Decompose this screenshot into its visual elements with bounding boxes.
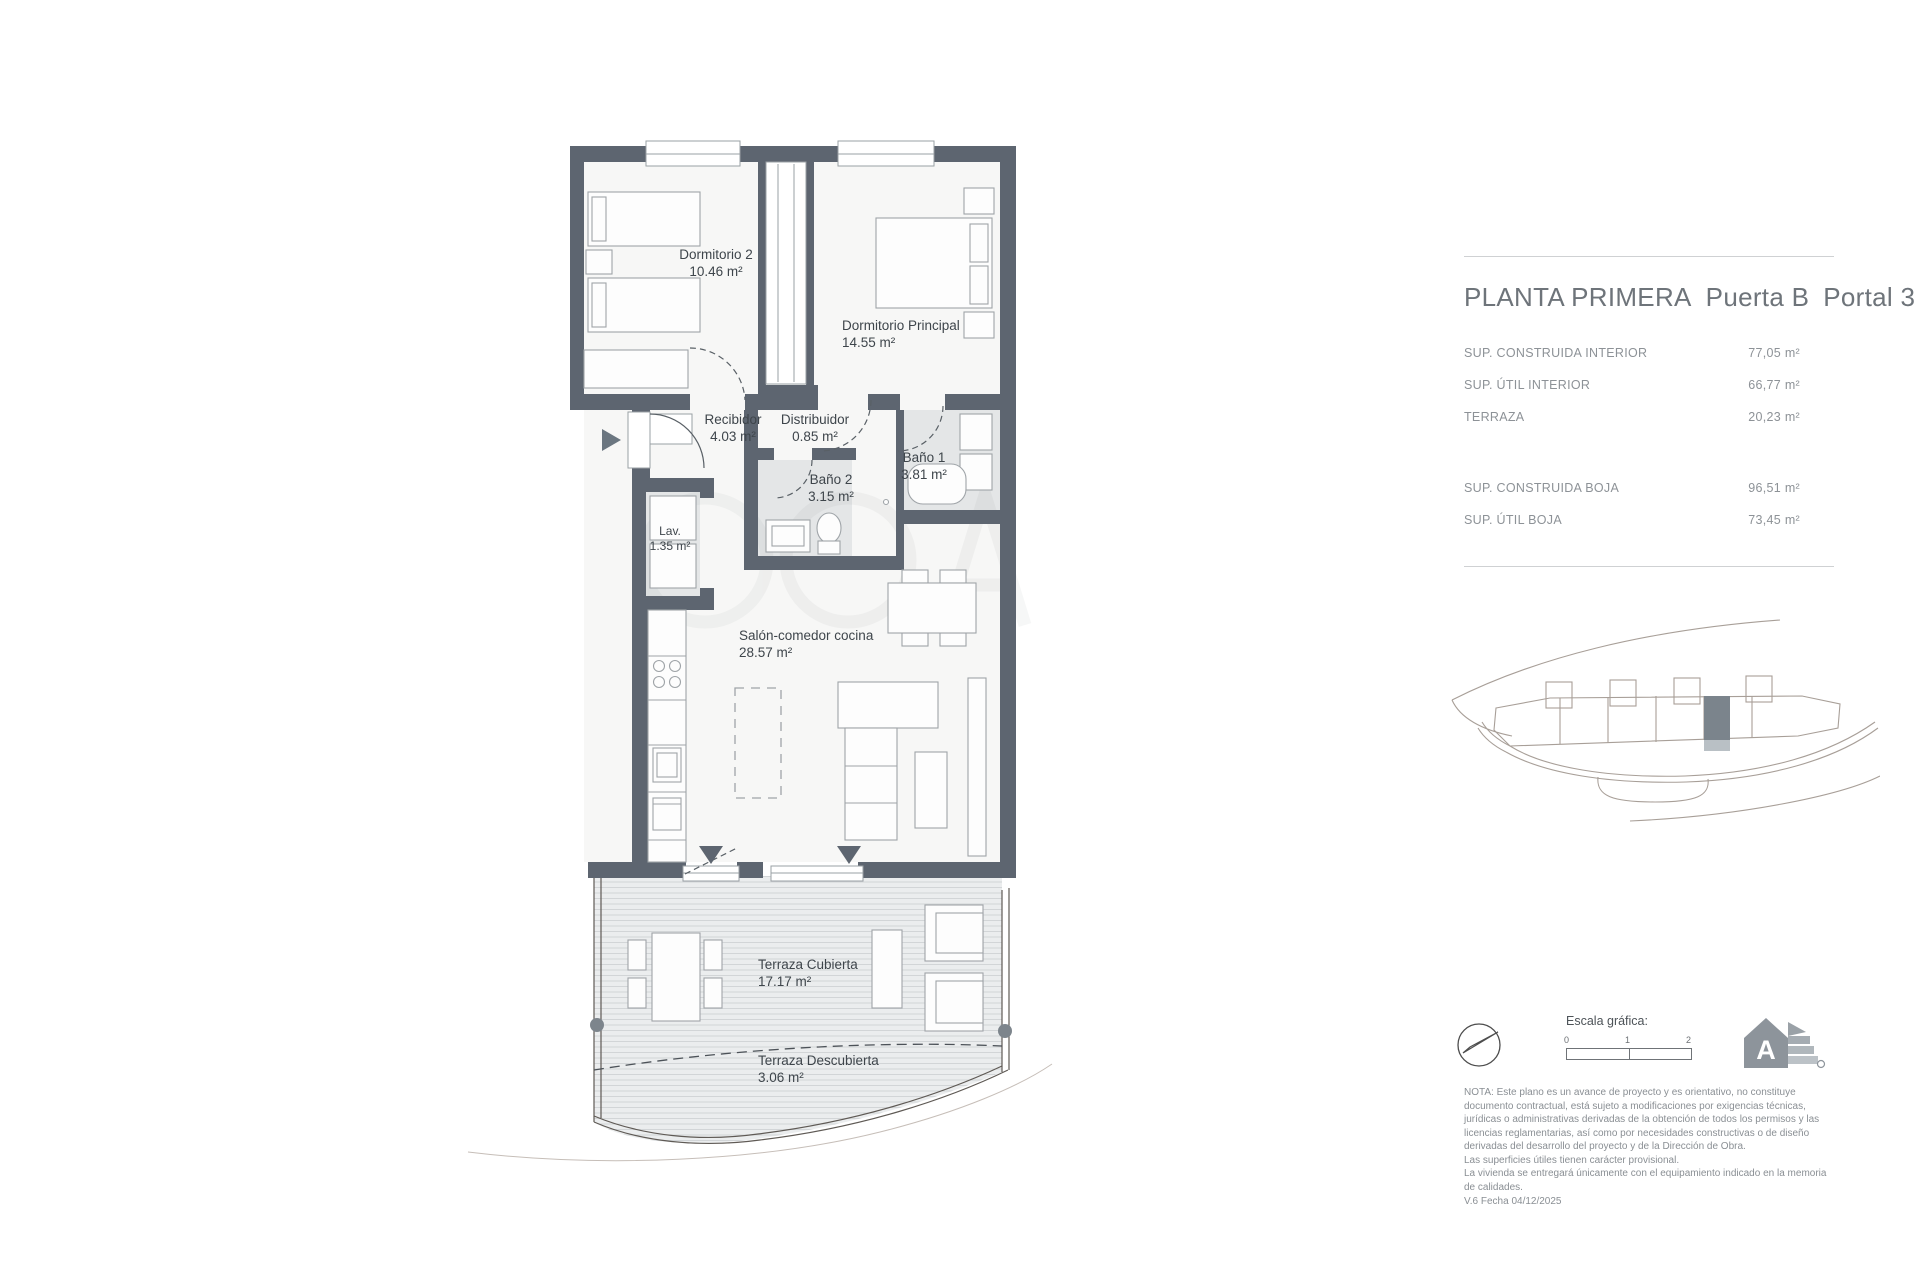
surface-row: SUP. ÚTIL BOJA73,45 m² [1464,513,1800,527]
page-title: PLANTA PRIMERAPuerta BPortal 3 [1464,282,1844,313]
terrace-column [998,1024,1012,1038]
room-label-bano-1: Baño 13.81 m² [901,450,947,483]
scale-label: Escala gráfica: [1566,1014,1648,1028]
surface-row: SUP. ÚTIL INTERIOR66,77 m² [1464,378,1800,392]
floor-plan-page: { "panel": { "title": { "part1": "PLANTA… [0,0,1920,1280]
panel-top-rule [1464,256,1834,257]
panel-bottom-rule [1464,566,1834,567]
room-label-terraza-descubierta: Terraza Descubierta3.06 m² [758,1053,879,1086]
site-key-plan [1450,616,1880,846]
north-compass-icon [1454,1020,1504,1070]
highlighted-unit [1704,696,1730,740]
svg-text:A: A [1756,1035,1776,1065]
surface-row: SUP. CONSTRUIDA INTERIOR77,05 m² [1464,346,1800,360]
scale-tick: 2 [1686,1035,1691,1045]
surface-row: SUP. CONSTRUIDA BOJA96,51 m² [1464,481,1800,495]
disclaimer-note: NOTA: Este plano es un avance de proyect… [1464,1086,1836,1194]
room-label-terraza-cubierta: Terraza Cubierta17.17 m² [758,957,858,990]
room-label-bano-2: Baño 23.15 m² [808,472,854,505]
plan-version-date: V.6 Fecha 04/12/2025 [1464,1196,1562,1207]
room-label-distribuidor: Distribuidor0.85 m² [781,412,849,445]
room-label-salon: Salón-comedor cocina28.57 m² [739,628,873,661]
room-label-recibidor: Recibidor4.03 m² [704,412,761,445]
surface-row: TERRAZA20,23 m² [1464,410,1800,424]
scale-bar [1566,1048,1692,1060]
scale-tick: 1 [1625,1035,1630,1045]
terrace-column [590,1018,604,1032]
highlighted-unit-terrace [1704,740,1730,751]
room-label-dormitorio-2: Dormitorio 210.46 m² [679,247,753,280]
wardrobe [766,162,806,384]
energy-rating-house-icon: A [1740,1012,1826,1072]
room-label-dormitorio-principal: Dormitorio Principal14.55 m² [842,318,960,351]
terrace [468,876,1052,1161]
room-label-lav: Lav.1.35 m² [650,524,691,554]
scale-tick: 0 [1564,1035,1569,1045]
